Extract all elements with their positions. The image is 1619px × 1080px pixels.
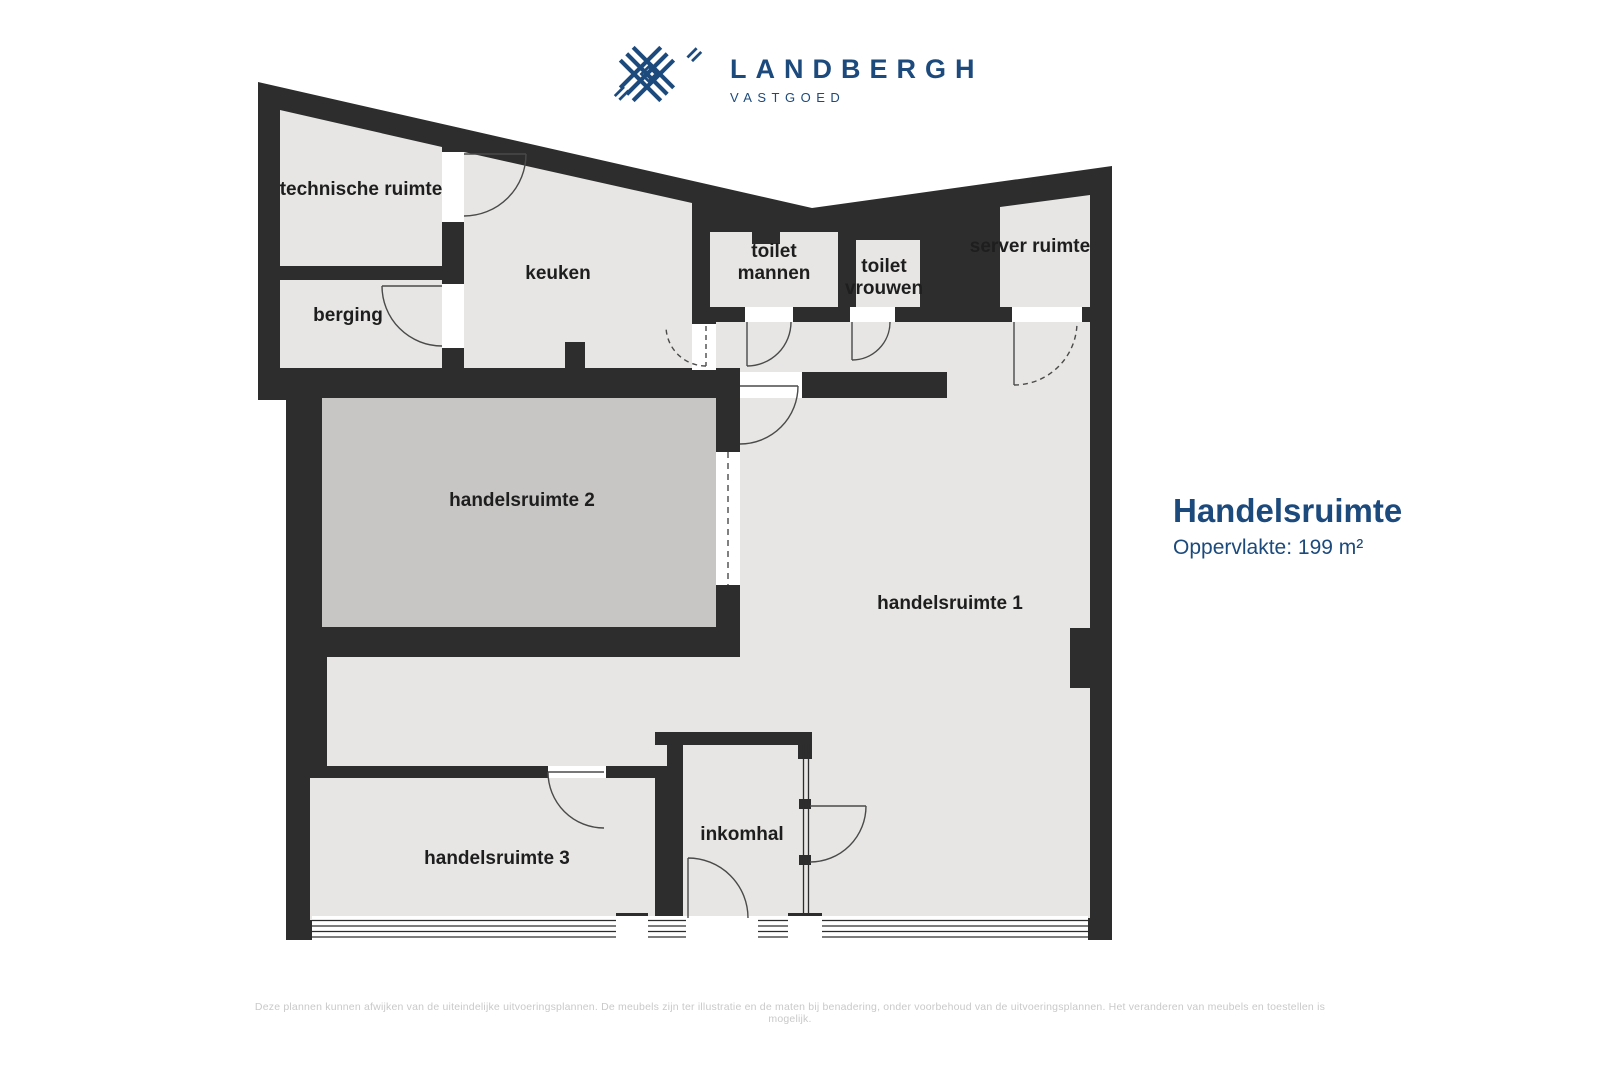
label-handelsruimte-3: handelsruimte 3 (424, 848, 570, 869)
floor-handelsruimte-2 (322, 398, 716, 627)
opening-toilet-vrouwen (850, 307, 895, 322)
opening-keuken-corridor (692, 324, 716, 370)
label-inkomhal: inkomhal (700, 824, 783, 845)
inkomhal-top-wall (655, 732, 812, 745)
label-handelsruimte-1: handelsruimte 1 (877, 593, 1023, 614)
plan-area: Oppervlakte: 199 m² (1173, 536, 1402, 560)
handelsruimte-2-block (308, 368, 740, 657)
label-handelsruimte-2: handelsruimte 2 (449, 490, 595, 511)
opening-berging (442, 284, 464, 348)
glass-door-pivot-block-bottom (799, 855, 811, 865)
floorplan-page: LANDBERGH VASTGOED (0, 0, 1619, 1080)
label-berging: berging (313, 305, 383, 326)
label-keuken: keuken (525, 263, 590, 284)
label-toilet-vrouwen-line2: vrouwen (845, 278, 923, 299)
opening-toilet-mannen (745, 307, 793, 322)
plan-title: Handelsruimte (1173, 494, 1402, 529)
opening-handelsruimte-1 (740, 372, 802, 398)
right-wall-pilaster (1070, 628, 1090, 688)
label-technische-ruimte: technische ruimte (280, 179, 443, 200)
opening-server-ruimte (1012, 307, 1082, 322)
inkomhal-left-wall (667, 745, 683, 920)
label-toilet-mannen-line1: toilet (751, 241, 797, 262)
label-toilet-mannen-line2: mannen (738, 263, 811, 284)
info-panel: Handelsruimte Oppervlakte: 199 m² (1173, 494, 1402, 560)
label-server-ruimte: server ruimte (970, 236, 1090, 257)
inkomhal-right-stub (798, 745, 812, 759)
label-toilet-vrouwen-line1: toilet (861, 256, 907, 277)
opening-technische-ruimte (442, 152, 464, 222)
disclaimer-text: Deze plannen kunnen afwijken van de uite… (242, 1001, 1338, 1025)
glass-door-pivot-block-top (799, 799, 811, 809)
